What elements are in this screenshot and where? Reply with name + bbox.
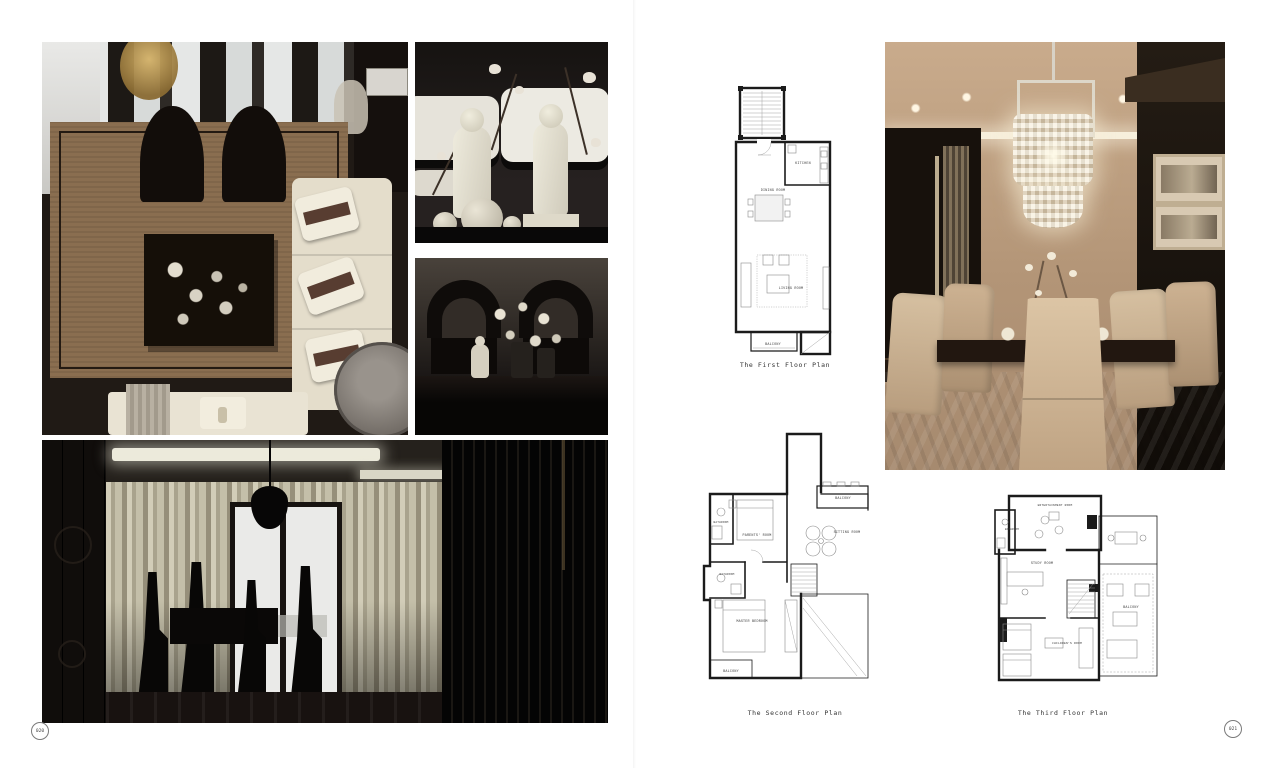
dark-table [415, 376, 608, 435]
medallion-hardware [54, 526, 92, 564]
first-floor-plan: KITCHEN DINING ROOM LIVING ROOM [733, 85, 837, 357]
magnolia-blossom [591, 138, 601, 147]
entertainment-room [1035, 512, 1063, 538]
second-floor-plan: BALCONY BATHROOM PARENTS' ROOM SITTING R… [697, 432, 875, 700]
dining-zone [748, 195, 790, 221]
balcony-bottom [710, 660, 752, 678]
daybed-pillow [200, 397, 246, 429]
master-bedroom [715, 600, 797, 652]
room-label-entertainment: ENTERTAINMENT ROOM [1038, 504, 1073, 507]
medallion-hardware [58, 640, 86, 668]
second-floor-plan-drawing: BALCONY BATHROOM PARENTS' ROOM SITTING R… [697, 432, 875, 700]
light-slit [562, 440, 565, 570]
page-number-left-text: 020 [36, 729, 44, 734]
childrens-room [1003, 624, 1093, 676]
stair-protrusion [787, 434, 821, 492]
bathroom-mid [710, 562, 745, 598]
chandelier-glow [1035, 138, 1071, 174]
blossom [1025, 264, 1033, 271]
gray-throw [126, 384, 170, 435]
figurine-head [460, 108, 484, 132]
caption-third-floor: The Third Floor Plan [983, 709, 1143, 717]
page-number-left: 020 [31, 722, 49, 740]
caption-first-floor: The First Floor Plan [705, 361, 865, 369]
room-label-dining: DINING ROOM [761, 189, 786, 193]
bathroom [995, 510, 1015, 554]
chandelier-rod [1052, 42, 1055, 82]
room-label-parents: PARENTS' ROOM [742, 533, 771, 538]
magnolia-blossom [437, 152, 446, 160]
room-label-study: STUDY ROOM [1031, 562, 1053, 566]
room-label-balcony-top: BALCONY [835, 497, 851, 501]
photo-horseshoe-chairs [415, 258, 608, 435]
third-floor-plan: ENTERTAINMENT ROOM BATHROOM STUDY ROOM [987, 488, 1163, 700]
framed-artwork [1153, 154, 1225, 204]
slatted-screen [442, 440, 608, 723]
blossom [1035, 290, 1042, 296]
room-label-balcony-bottom: BALCONY [723, 670, 739, 674]
dark-wood-floor [106, 692, 442, 723]
buddha-figurine-right [533, 122, 568, 216]
white-flowers [485, 298, 569, 372]
slipcover-chair [941, 283, 995, 393]
air-vent [366, 68, 408, 96]
room-label-kitchen: KITCHEN [795, 162, 811, 166]
roof-terrace [801, 594, 868, 678]
balcony-zone [751, 332, 830, 354]
outer-walls [999, 550, 1099, 680]
photo-buddha-figurines [415, 42, 608, 243]
small-figurine [471, 344, 489, 378]
daybed [108, 392, 308, 435]
sitting-area [806, 526, 836, 556]
cove-light [360, 470, 446, 479]
room-label-children: CHILDREN'S ROOM [1052, 641, 1082, 645]
room-label-bathroom-left: BATHROOM [713, 521, 728, 524]
room-label-living: LIVING ROOM [779, 287, 804, 291]
dark-tabletop [415, 227, 608, 243]
cove-light [112, 448, 380, 461]
framed-artwork [1153, 204, 1225, 250]
chair-back-opening [442, 298, 486, 338]
shell-chandelier-tier [1023, 186, 1083, 228]
figurine-plinth [523, 214, 579, 227]
room-label-balcony: BALCONY [765, 343, 781, 347]
door-opening [757, 139, 771, 144]
coffee-table-with-figurines [144, 234, 274, 346]
room-label-sitting: SITTING ROOM [834, 531, 861, 535]
wood-panel-wall [42, 440, 106, 723]
stairwell [738, 86, 786, 140]
figurine-head [539, 104, 563, 128]
roof-wing [1099, 516, 1157, 676]
stairs [791, 564, 817, 596]
living-zone [741, 255, 829, 309]
room-label-bathroom-mid: BATHROOM [719, 573, 734, 576]
blossom [1069, 270, 1077, 277]
slipcover-chair [1165, 281, 1219, 387]
photo-dark-dining-room [42, 440, 608, 723]
third-floor-plan-drawing: ENTERTAINMENT ROOM BATHROOM STUDY ROOM [987, 488, 1163, 700]
slipcover-chair-front [1019, 298, 1107, 470]
book-spread: 020 [0, 0, 1268, 768]
magnolia-blossom [515, 86, 524, 94]
room-label-master: MASTER BEDROOM [736, 620, 767, 624]
first-floor-plan-drawing: KITCHEN DINING ROOM LIVING ROOM [733, 85, 837, 357]
outer-walls [736, 142, 830, 332]
magnolia-blossom [583, 72, 596, 83]
room-label-balcony: BALCONY [1123, 606, 1139, 610]
photo-living-room-overhead [42, 42, 408, 435]
caption-second-floor: The Second Floor Plan [715, 709, 875, 717]
balcony-top [817, 482, 868, 508]
blossom [1047, 252, 1056, 260]
pendant-cord [269, 440, 271, 488]
photo-dining-room-chandelier [885, 42, 1225, 470]
page-number-right-text: 021 [1229, 727, 1237, 732]
room-label-bathroom: BATHROOM [1005, 528, 1019, 531]
magnolia-blossom [489, 64, 501, 74]
parents-room [710, 494, 787, 582]
page-number-right: 021 [1224, 720, 1242, 738]
bathroom-left [710, 494, 733, 544]
